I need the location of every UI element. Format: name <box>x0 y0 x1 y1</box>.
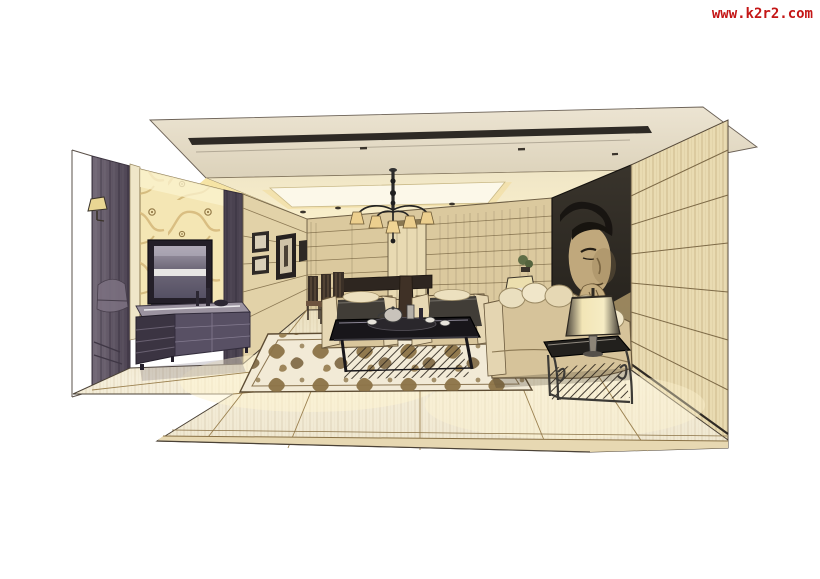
aubergine-panel <box>92 156 130 392</box>
cream-pillar <box>130 164 140 340</box>
tv <box>148 240 212 308</box>
page-edge-lines <box>72 150 92 397</box>
table-shadow <box>344 343 470 379</box>
sofa-arm <box>484 300 506 376</box>
interior-sketch <box>0 0 820 579</box>
interior-sketch-canvas: www.k2r2.com <box>0 0 820 579</box>
lamp-shade <box>566 296 620 336</box>
watermark-text: www.k2r2.com <box>712 6 813 22</box>
bolster-pillow <box>434 290 470 301</box>
alcove-chair-silhouette <box>97 279 128 312</box>
teapot <box>384 308 402 322</box>
bolster-pillow <box>343 292 379 303</box>
